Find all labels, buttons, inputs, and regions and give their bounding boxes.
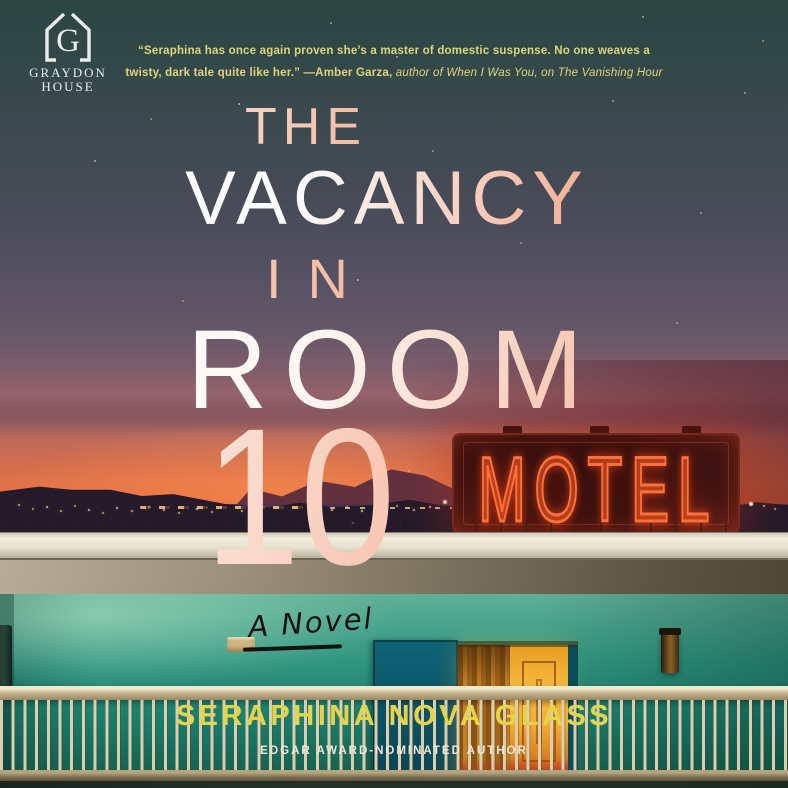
review-quote: “Seraphina has once again proven she’s a… bbox=[84, 40, 704, 84]
title-line-10: 10 bbox=[36, 400, 564, 595]
graydon-house-logo-icon: G bbox=[40, 10, 96, 66]
city-lights bbox=[0, 0, 2, 2]
publisher-name-line2: HOUSE bbox=[22, 80, 114, 94]
author-name: SERAPHINA NOVA GLASS bbox=[0, 700, 788, 733]
railing-top-bar bbox=[0, 686, 788, 700]
book-cover: MOTEL A Novel THE VACANCY IN ROOM 10 “Se… bbox=[0, 0, 788, 788]
balcony-floor-shadow bbox=[0, 781, 788, 788]
wall-sconce-left bbox=[0, 625, 12, 687]
quote-source: author of When I Was You, on The Vanishi… bbox=[392, 67, 662, 79]
publisher-name-line1: GRAYDON bbox=[22, 66, 114, 80]
quote-credit: —Amber Garza, bbox=[303, 67, 392, 79]
window-lintel bbox=[458, 641, 578, 647]
publisher-logo: G GRAYDON HOUSE bbox=[22, 10, 114, 94]
wall-sconce bbox=[661, 632, 679, 673]
author-tagline: EDGAR AWARD-NOMINATED AUTHOR bbox=[0, 745, 788, 757]
logo-monogram: G bbox=[56, 23, 80, 59]
quote-line1: “Seraphina has once again proven she’s a… bbox=[138, 45, 650, 57]
title-line-in: IN bbox=[107, 251, 507, 307]
title-line-the: THE bbox=[106, 101, 506, 153]
sconce-cap bbox=[659, 628, 681, 635]
quote-line2-start: twisty, dark tale quite like her.” bbox=[125, 67, 303, 79]
title-line-vacancy: VACANCY bbox=[0, 161, 774, 237]
